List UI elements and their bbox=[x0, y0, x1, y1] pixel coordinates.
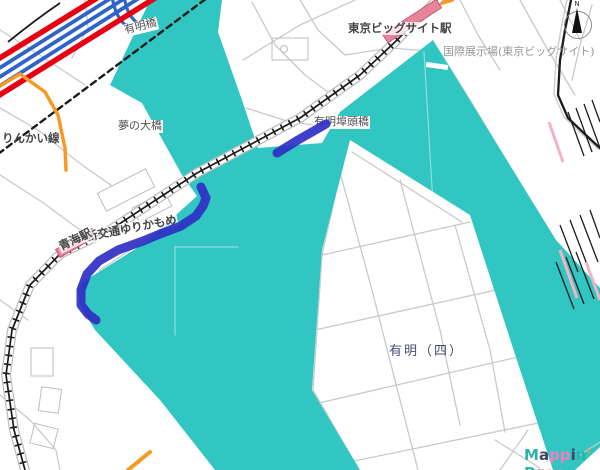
logo-letter: r bbox=[536, 464, 543, 470]
label-futo-bridge: 有明埠頭橋 bbox=[313, 116, 370, 129]
label-ariake-4: 有明（四） bbox=[388, 345, 465, 360]
label-big-sight-station: 東京ビッグサイト駅 bbox=[347, 22, 453, 35]
logo-letter: D bbox=[524, 464, 536, 470]
logo-letter: p bbox=[560, 446, 571, 464]
mappin-drop-logo: Mappin' Drop bbox=[524, 446, 600, 470]
label-exhibition-hall: 国際展示場(東京ビッグサイト) bbox=[442, 46, 596, 59]
logo-letter bbox=[591, 446, 596, 464]
compass-icon: N bbox=[557, 2, 597, 42]
compass-needle bbox=[572, 8, 582, 33]
label-yume-bridge: 夢の大橋 bbox=[117, 120, 163, 133]
logo-letter: o bbox=[544, 464, 554, 470]
compass-north-label: N bbox=[574, 0, 579, 8]
logo-letter: p bbox=[554, 464, 565, 470]
logo-letter: n bbox=[576, 446, 587, 464]
logo-letter: a bbox=[539, 446, 549, 464]
map-canvas[interactable]: 有明橋 夢の大橋 りんかい線 有明埠頭橋 東京ビッグサイト駅 国際展示場(東京ビ… bbox=[0, 0, 600, 470]
label-rinkai-line: りんかい線 bbox=[1, 132, 61, 145]
logo-letter: p bbox=[549, 446, 560, 464]
logo-letter: M bbox=[524, 446, 539, 464]
